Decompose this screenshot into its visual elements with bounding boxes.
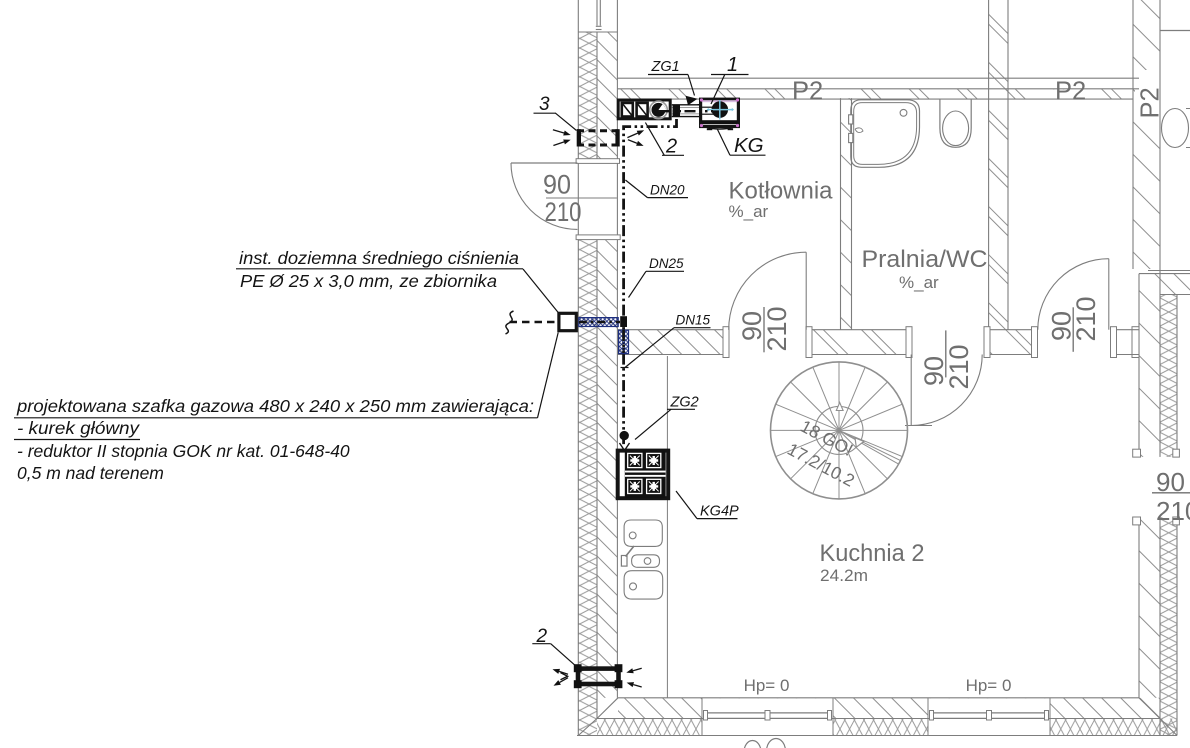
svg-text:210: 210: [1071, 296, 1101, 341]
svg-text:PE Ø 25 x 3,0 mm, ze zbiornika: PE Ø 25 x 3,0 mm, ze zbiornika: [240, 271, 497, 291]
svg-text:P2: P2: [792, 78, 823, 106]
svg-text:%_ar: %_ar: [899, 273, 939, 292]
svg-text:2: 2: [665, 136, 677, 158]
svg-text:P2: P2: [1055, 78, 1086, 106]
svg-text:210: 210: [545, 197, 582, 227]
svg-text:1: 1: [727, 54, 738, 76]
svg-text:Hp= 0: Hp= 0: [744, 676, 790, 695]
svg-text:projektowana szafka gazowa 480: projektowana szafka gazowa 480 x 240 x 2…: [16, 396, 534, 416]
svg-text:- reduktor II stopnia GOK nr k: - reduktor II stopnia GOK nr kat. 01-648…: [17, 441, 350, 461]
svg-text:- kurek główny: - kurek główny: [17, 418, 140, 438]
svg-text:KG: KG: [734, 134, 764, 157]
svg-text:KG4P: KG4P: [700, 504, 739, 520]
svg-text:P2: P2: [1137, 87, 1165, 118]
svg-text:Kotłownia: Kotłownia: [729, 178, 833, 205]
svg-text:ZG1: ZG1: [651, 59, 680, 75]
svg-text:210: 210: [1156, 496, 1190, 526]
svg-text:DN25: DN25: [649, 256, 684, 271]
svg-text:DN15: DN15: [676, 313, 711, 328]
svg-text:210: 210: [762, 306, 792, 351]
svg-text:210: 210: [944, 344, 974, 389]
svg-text:0,5 m nad terenem: 0,5 m nad terenem: [17, 463, 164, 483]
svg-text:ZG2: ZG2: [670, 394, 699, 410]
svg-text:Kuchnia 2: Kuchnia 2: [820, 540, 925, 567]
svg-text:%_ar: %_ar: [729, 202, 769, 221]
svg-text:Hp= 0: Hp= 0: [966, 676, 1012, 695]
svg-text:3: 3: [539, 94, 550, 115]
svg-text:90: 90: [543, 170, 571, 200]
svg-text:24.2m: 24.2m: [820, 567, 868, 585]
svg-text:DN20: DN20: [650, 183, 685, 198]
svg-text:Pralnia/WC: Pralnia/WC: [862, 246, 988, 273]
svg-text:inst. doziemna średniego ciśni: inst. doziemna średniego ciśnienia: [239, 248, 519, 268]
